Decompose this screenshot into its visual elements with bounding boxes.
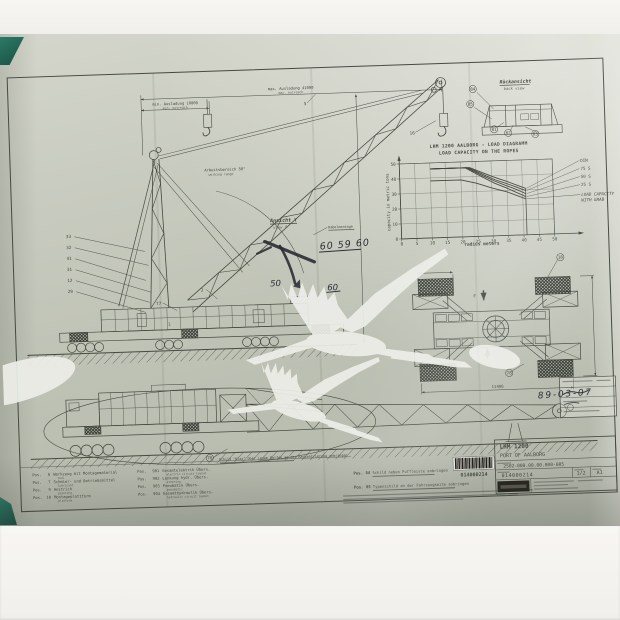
svg-text:40: 40 (391, 177, 397, 183)
photo-of-crane-drawing: 0510152025303540455001020304050DIN75 S50… (0, 0, 620, 620)
svg-text:50: 50 (390, 162, 396, 168)
svg-text:84: 84 (470, 86, 476, 92)
main-hook (438, 126, 446, 136)
svg-text:hydraulic circuit layout: hydraulic circuit layout (167, 494, 209, 499)
drawing-number: 2502-000.00.00.000-005 (503, 462, 564, 470)
drawing-sheet: 0510152025303540455001020304050DIN75 S50… (0, 24, 620, 536)
svg-text:12: 12 (67, 278, 73, 284)
svg-text:16: 16 (410, 130, 416, 136)
rear-view-detail (474, 90, 562, 136)
svg-text:Pos.: Pos. (33, 495, 42, 500)
outrigger-base-dim: 11406 (492, 384, 505, 389)
view-y-label-en: view Y (273, 224, 288, 229)
max-outreach-label-en: max. outreach (278, 90, 303, 95)
svg-text:75 S: 75 S (580, 166, 591, 171)
chart-subtitle: LOAD CAPACITY ON THE ROPES (439, 148, 519, 157)
drawing-photo: 0510152025303540455001020304050DIN75 S50… (0, 34, 620, 526)
svg-text:20: 20 (392, 207, 398, 213)
svg-text:18: 18 (558, 255, 564, 261)
svg-text:Pos.: Pos. (33, 487, 42, 492)
drawing-labels: max. Ausladung 41000 max. outreach min. … (152, 78, 544, 466)
svg-text:25 S: 25 S (581, 182, 592, 187)
svg-text:0: 0 (400, 241, 403, 247)
svg-text:6: 6 (48, 472, 51, 477)
svg-text:82: 82 (506, 130, 512, 136)
svg-text:5: 5 (416, 241, 419, 247)
note-pos84-text: Schild neben Puffleiste anbringen (372, 468, 448, 475)
svg-text:81: 81 (491, 127, 497, 133)
parts-list: Pos.6Werkzeug mit MontagematerialtoolPos… (32, 466, 213, 503)
svg-text:Pos.: Pos. (137, 476, 146, 481)
svg-text:40: 40 (522, 237, 528, 243)
svg-text:10: 10 (392, 222, 398, 228)
svg-text:1: 1 (168, 322, 171, 328)
sheet-number: 1/2 (576, 470, 585, 476)
svg-text:30: 30 (391, 192, 397, 198)
svg-text:9: 9 (48, 487, 51, 492)
svg-text:32: 32 (66, 245, 72, 251)
svg-text:77: 77 (156, 301, 162, 307)
svg-text:78: 78 (507, 370, 513, 376)
svg-text:50 S: 50 S (581, 174, 592, 179)
svg-text:Pos.: Pos. (137, 469, 146, 474)
svg-text:904: 904 (153, 491, 161, 496)
svg-text:50: 50 (552, 236, 558, 242)
svg-text:31: 31 (67, 267, 73, 273)
note-pos84-label: Pos. 84 (353, 470, 371, 476)
model-number: LHM 1200 (500, 443, 530, 451)
svg-text:83: 83 (533, 131, 539, 137)
svg-text:76: 76 (207, 455, 213, 461)
svg-text:41: 41 (66, 256, 72, 262)
aux-hook (203, 127, 210, 136)
barcode: 014000214 (453, 456, 495, 479)
rear-view-label-en: back view (504, 85, 525, 91)
chart-xlabel: radius meters (464, 241, 500, 248)
document-number: 014000214 (502, 472, 534, 479)
sheet-format: A1 (596, 470, 602, 476)
svg-text:DIN: DIN (580, 158, 588, 163)
svg-text:Pos.: Pos. (32, 472, 41, 477)
svg-text:Pos.: Pos. (138, 491, 147, 496)
svg-text:29: 29 (68, 289, 74, 295)
svg-text:platform: platform (58, 498, 72, 502)
svg-text:15: 15 (445, 240, 451, 246)
working-range-label-en: working range (208, 172, 233, 177)
svg-text:Pos.: Pos. (138, 484, 147, 489)
svg-text:903: 903 (153, 483, 160, 488)
svg-text:5: 5 (304, 101, 307, 107)
svg-text:902: 902 (153, 476, 160, 481)
project-name: PORT OF AALBORG (500, 452, 545, 459)
pencil-scribble (265, 240, 315, 264)
svg-text:2: 2 (201, 288, 204, 294)
outrigger-plan-view (412, 259, 598, 395)
load-chart: 0510152025303540455001020304050DIN75 S50… (390, 148, 616, 247)
photo-bottom-margin (0, 526, 620, 620)
cable-label: Kabelmontage (328, 225, 353, 230)
svg-text:7: 7 (48, 479, 50, 484)
svg-text:33: 33 (66, 234, 72, 240)
svg-text:35: 35 (506, 238, 512, 244)
svg-text:Pos.: Pos. (32, 480, 41, 485)
min-outreach-label-en: min. outreach (163, 105, 188, 110)
svg-text:WITH GRAB: WITH GRAB (581, 197, 604, 203)
svg-text:85: 85 (468, 101, 474, 107)
svg-text:10: 10 (46, 494, 51, 499)
stork-silhouette (242, 248, 472, 375)
drawing-artwork: 0510152025303540455001020304050DIN75 S50… (0, 24, 620, 536)
svg-text:0: 0 (396, 237, 399, 243)
svg-text:45: 45 (537, 237, 543, 243)
note-pos85-label: Pos. 85 (354, 484, 372, 490)
svg-text:10: 10 (430, 240, 436, 246)
handwritten-50: 50 (270, 279, 281, 289)
svg-text:901: 901 (152, 468, 160, 473)
barcode-number: 014000214 (460, 472, 487, 479)
